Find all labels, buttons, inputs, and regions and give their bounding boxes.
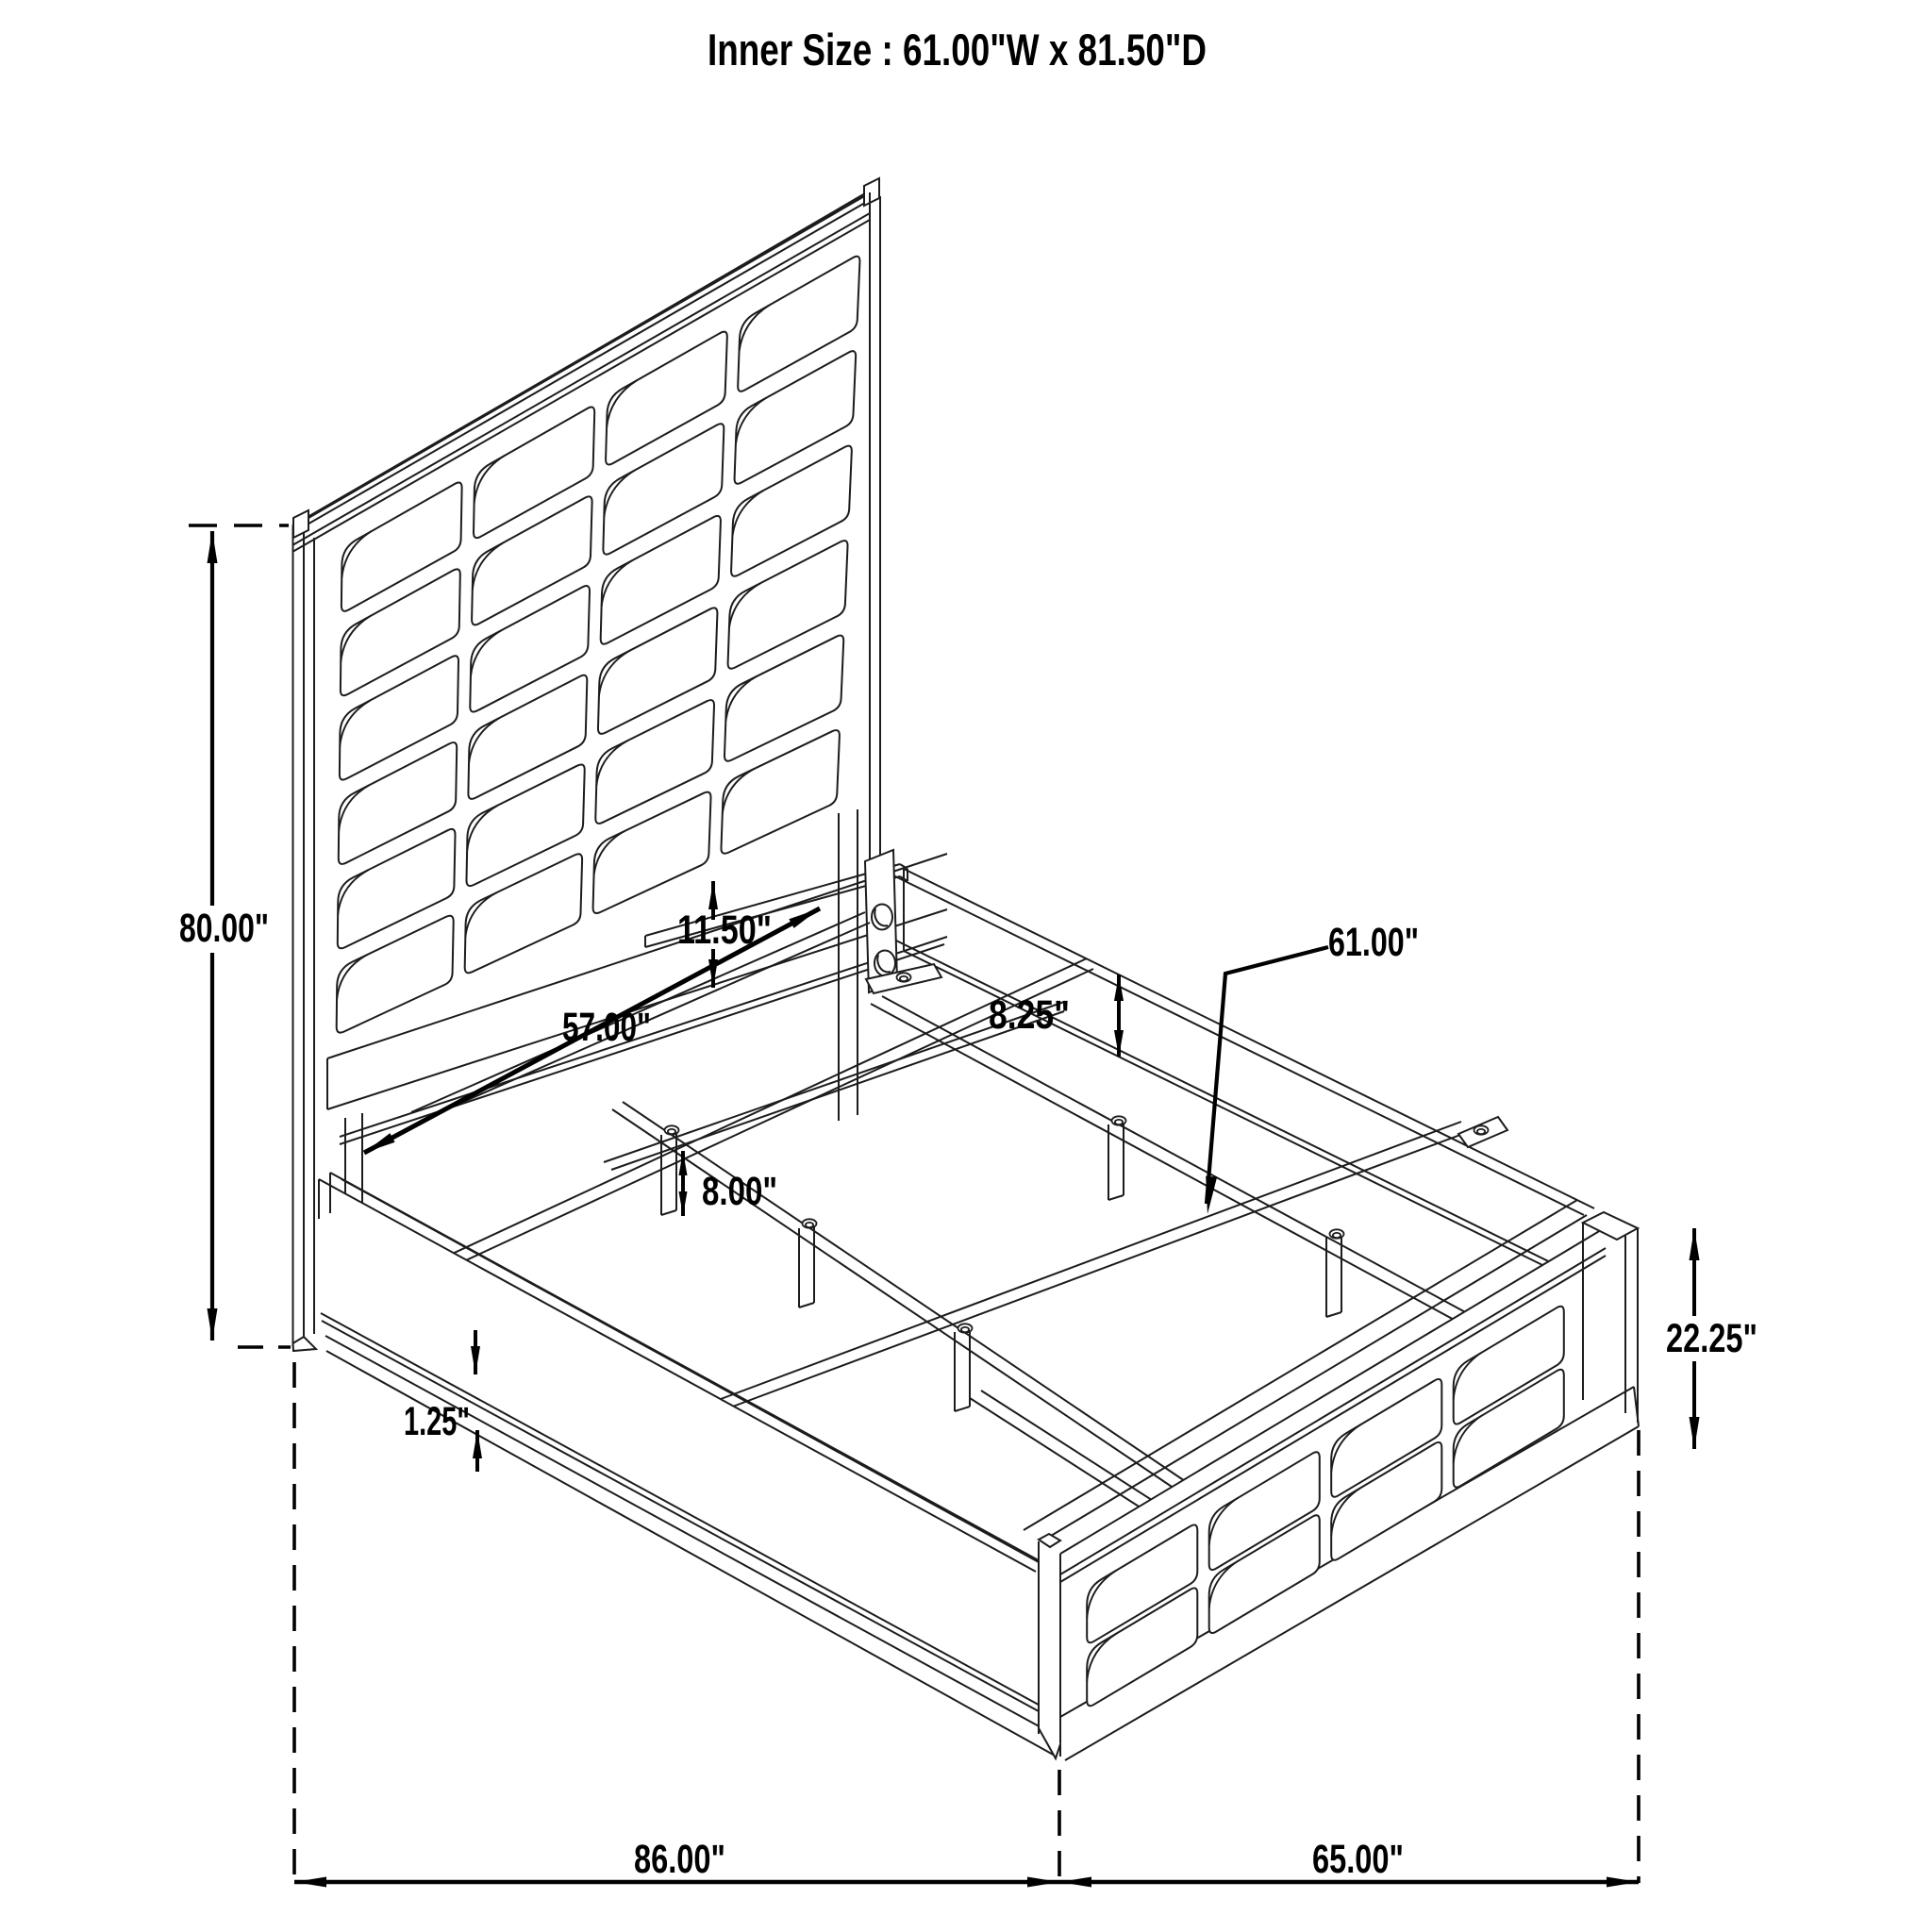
svg-text:8.00": 8.00" bbox=[702, 1169, 777, 1214]
svg-text:11.50": 11.50" bbox=[677, 908, 772, 953]
svg-text:61.00": 61.00" bbox=[1328, 920, 1419, 965]
svg-text:86.00": 86.00" bbox=[634, 1837, 725, 1882]
svg-text:80.00": 80.00" bbox=[179, 906, 269, 951]
svg-text:57.00": 57.00" bbox=[562, 1005, 651, 1050]
svg-text:8.25": 8.25" bbox=[989, 992, 1070, 1038]
svg-text:Inner Size : 61.00"W x 81.50"D: Inner Size : 61.00"W x 81.50"D bbox=[708, 25, 1207, 75]
svg-text:65.00": 65.00" bbox=[1312, 1837, 1404, 1882]
svg-text:1.25": 1.25" bbox=[404, 1399, 470, 1444]
svg-text:22.25": 22.25" bbox=[1666, 1316, 1757, 1361]
